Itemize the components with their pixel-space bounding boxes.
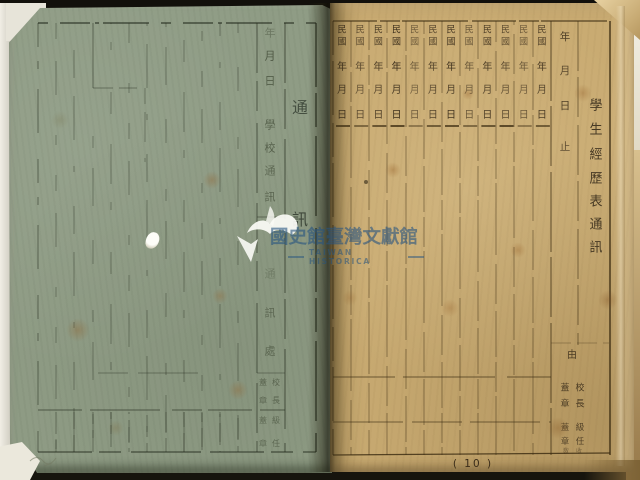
vertical-char: 蓋 [259,379,267,387]
vertical-char: 月 [560,66,571,77]
vertical-char: 日 [355,111,365,121]
vertical-char: 月 [446,86,456,96]
vertical-char: 民 [537,27,546,36]
vertical-char: 任 [272,440,280,448]
vertical-char: 學 [265,120,276,131]
vertical-char: 國 [374,39,383,48]
vertical-char: 止 [560,142,571,153]
vertical-char: 日 [501,111,511,121]
vertical-char: 級 [576,424,585,433]
vertical-char: 校 [265,143,276,154]
vertical-char: 年 [519,63,529,73]
vertical-char: 民 [410,27,419,36]
vertical-char: 日 [373,111,383,121]
vertical-char: 生 [589,124,602,137]
vertical-char: 民 [519,27,528,36]
vertical-char: 年 [265,28,276,39]
vertical-char: 民 [392,27,401,36]
vertical-char: 國 [410,39,419,48]
vertical-char: 學 [589,100,602,113]
vertical-char: 日 [537,111,547,121]
vertical-char: 國 [483,39,492,48]
vertical-char: 月 [537,86,547,96]
vertical-char: 國 [519,39,528,48]
vertical-char: 章 [259,440,267,448]
vertical-char: 訊 [265,192,276,203]
vertical-char: 訊 [589,242,602,255]
vertical-char: 通 [589,219,602,232]
vertical-char: 月 [519,86,529,96]
vertical-char: 任 [576,438,585,447]
vertical-char: 經 [589,149,602,162]
vertical-char: 日 [410,111,420,121]
vertical-char: 由 [567,351,577,361]
vertical-char: 月 [428,86,438,96]
vertical-char: 年 [355,63,365,73]
vertical-char: 日 [464,111,474,121]
vertical-char: 國 [356,39,365,48]
vertical-char: 民 [356,27,365,36]
vertical-char: 年 [482,63,492,73]
vertical-char: 民 [501,27,510,36]
vertical-char: 蓋 [560,385,569,394]
vertical-char: 月 [355,86,365,96]
vertical-char: 月 [464,86,474,96]
vertical-char: 年 [428,63,438,73]
vertical-char: 年 [392,63,402,73]
vertical-char: 國 [447,39,456,48]
vertical-char: 民 [374,27,383,36]
binding-gutter-shadow [308,3,346,472]
vertical-char: 國 [501,39,510,48]
vertical-char: 歷 [589,173,602,186]
vertical-char: 國 [428,39,437,48]
vertical-char: 民 [483,27,492,36]
vertical-char: 民 [447,27,456,36]
vertical-char: 級 [272,417,280,425]
vertical-char: 年 [464,63,474,73]
vertical-char: 日 [428,111,438,121]
vertical-char: 國 [392,39,401,48]
vertical-char: 民 [428,27,437,36]
vertical-char: 月 [392,86,402,96]
vertical-char: 長 [575,401,584,410]
vertical-char: 月 [501,86,511,96]
vertical-char: 月 [410,86,420,96]
vertical-char: 通 [265,269,276,280]
vertical-char: 日 [519,111,529,121]
vertical-char: 收 [576,449,582,455]
vertical-char: 年 [537,63,547,73]
vertical-char: 年 [446,63,456,73]
vertical-char: 年 [373,63,383,73]
vertical-char: 年 [560,32,571,43]
vertical-char: 年 [501,63,511,73]
vertical-char: 章 [561,438,570,447]
vertical-char: 日 [560,101,571,112]
vertical-char: 章 [259,397,267,405]
vertical-char: 日 [265,76,276,87]
vertical-char: 處 [265,346,276,357]
vertical-char: 國 [537,39,546,48]
vertical-char: 校 [272,379,280,387]
vertical-char: 日 [482,111,492,121]
vertical-char: 蓋 [561,424,570,433]
vertical-char: 年 [410,63,420,73]
vertical-char: 長 [272,397,280,405]
vertical-char: 民 [465,27,474,36]
vertical-char: 通 [292,100,308,116]
vertical-char: 日 [446,111,456,121]
vertical-char: 訊 [265,308,276,319]
vertical-char: 月 [373,86,383,96]
vertical-char: 月 [265,51,276,62]
vertical-char: 章 [560,401,569,410]
vertical-char: 敎 [563,449,569,455]
vertical-char: 校 [575,385,584,394]
vertical-char: 通 [265,166,276,177]
vertical-char: 月 [482,86,492,96]
vertical-char: 表 [589,196,602,209]
page-number: ( 10 ) [442,458,504,470]
vertical-char: 日 [392,111,402,121]
scanned-booklet-photo: ( 10 ) 年月日學校通訊通訊處通訊年月日止學生經歷表通訊校長蓋章級任蓋章校長… [0,0,640,480]
vertical-char: 蓋 [259,417,267,425]
vertical-char: 國 [465,39,474,48]
vertical-char: 訊 [292,212,308,228]
